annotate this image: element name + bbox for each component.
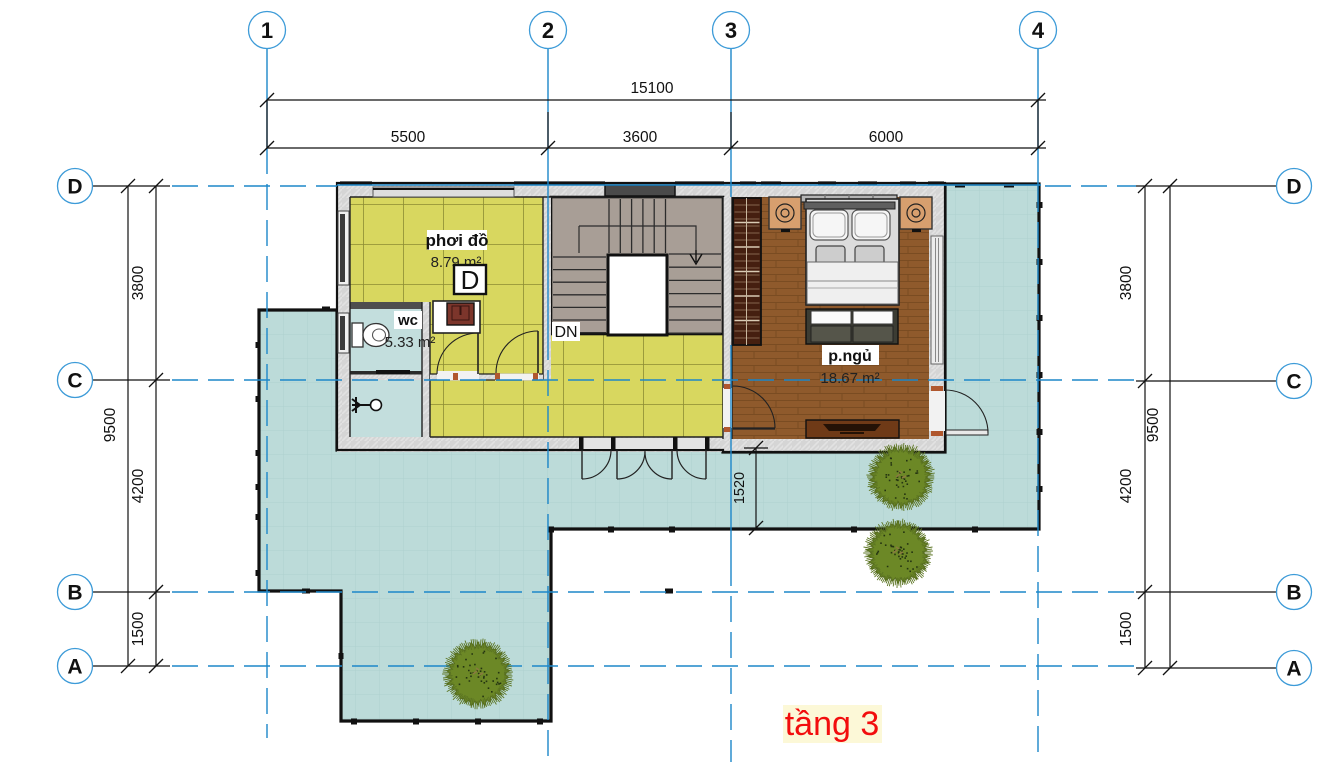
svg-text:1500: 1500 [130, 611, 147, 646]
svg-text:18.67 m²: 18.67 m² [820, 370, 879, 387]
svg-text:6000: 6000 [869, 129, 904, 146]
svg-text:A: A [1286, 658, 1301, 681]
svg-text:3800: 3800 [130, 265, 147, 300]
svg-text:4: 4 [1032, 18, 1045, 43]
svg-text:B: B [1286, 582, 1301, 605]
svg-text:wc: wc [397, 312, 418, 329]
svg-text:9500: 9500 [1145, 407, 1162, 442]
svg-text:4200: 4200 [1118, 468, 1135, 503]
svg-text:1520: 1520 [732, 472, 748, 504]
svg-text:DN: DN [554, 324, 577, 341]
svg-text:3600: 3600 [623, 129, 658, 146]
svg-text:p.ngủ: p.ngủ [828, 348, 872, 365]
svg-text:1: 1 [261, 18, 273, 43]
svg-text:5500: 5500 [391, 129, 426, 146]
svg-text:D: D [67, 176, 82, 199]
svg-text:9500: 9500 [102, 407, 119, 442]
svg-text:4200: 4200 [130, 468, 147, 503]
svg-text:15100: 15100 [630, 80, 673, 97]
svg-text:phơi đồ: phơi đồ [425, 231, 488, 250]
svg-text:C: C [1286, 371, 1301, 394]
svg-text:3: 3 [725, 18, 737, 43]
svg-text:D: D [1286, 176, 1301, 199]
svg-text:2: 2 [542, 18, 554, 43]
svg-text:tầng 3: tầng 3 [785, 705, 880, 743]
svg-text:1500: 1500 [1118, 611, 1135, 646]
svg-text:A: A [67, 656, 82, 679]
svg-text:D: D [461, 265, 480, 295]
svg-text:C: C [67, 370, 82, 393]
svg-text:3800: 3800 [1118, 265, 1135, 300]
svg-text:5.33 m²: 5.33 m² [385, 334, 436, 351]
svg-text:B: B [67, 582, 82, 605]
